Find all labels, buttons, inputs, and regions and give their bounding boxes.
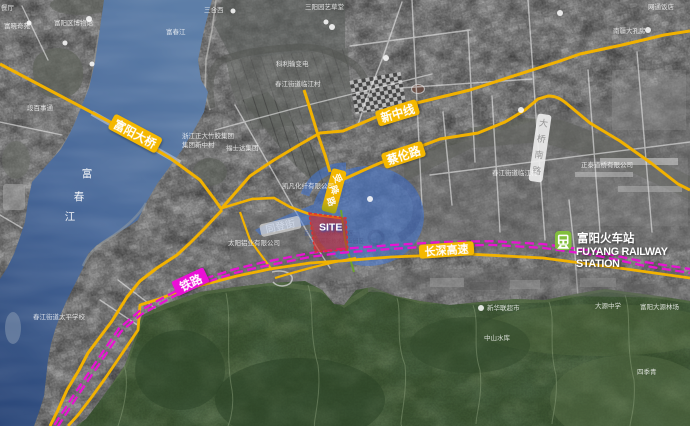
- svg-text:富晓奇苑: 富晓奇苑: [4, 21, 31, 30]
- svg-text:中山水库: 中山水库: [484, 333, 511, 342]
- svg-text:江: 江: [65, 211, 76, 223]
- svg-text:大: 大: [538, 117, 548, 129]
- svg-text:三阳园艺草堂: 三阳园艺草堂: [305, 2, 345, 11]
- svg-text:福士达集团: 福士达集团: [226, 143, 259, 152]
- svg-text:春江街道太平学校: 春江街道太平学校: [33, 312, 86, 321]
- svg-text:集团新中村: 集团新中村: [182, 140, 215, 149]
- svg-text:三合西: 三合西: [204, 5, 224, 14]
- svg-text:富阳火车站: 富阳火车站: [577, 231, 635, 245]
- svg-text:段百事通: 段百事通: [27, 103, 54, 112]
- svg-text:新华联超市: 新华联超市: [487, 303, 520, 312]
- svg-text:南: 南: [534, 148, 544, 160]
- svg-text:春: 春: [74, 191, 85, 203]
- svg-text:桥: 桥: [536, 133, 546, 145]
- svg-text:浙江正大竹胶集团: 浙江正大竹胶集团: [182, 131, 234, 140]
- svg-text:网通饭店: 网通饭店: [648, 2, 675, 11]
- svg-text:春江街道临江村: 春江街道临江村: [492, 168, 538, 177]
- svg-text:南疆大孔房: 南疆大孔房: [613, 26, 646, 35]
- svg-text:SITE: SITE: [319, 222, 342, 234]
- svg-text:富春江: 富春江: [166, 27, 186, 36]
- svg-text:大源中学: 大源中学: [595, 301, 622, 310]
- svg-text:春江街道临江村: 春江街道临江村: [275, 79, 321, 88]
- svg-text:太阳铝业有限公司: 太阳铝业有限公司: [228, 238, 280, 247]
- svg-text:富: 富: [82, 167, 93, 180]
- svg-text:四季青: 四季青: [637, 367, 657, 376]
- svg-text:凯凡化纤有限公司: 凯凡化纤有限公司: [282, 181, 334, 190]
- svg-text:富阳大源林场: 富阳大源林场: [640, 302, 680, 311]
- svg-text:STATION: STATION: [576, 258, 620, 270]
- svg-text:科利输变电: 科利输变电: [276, 59, 309, 68]
- svg-text:餐厅: 餐厅: [1, 3, 15, 12]
- svg-text:正泰道桥有限公司: 正泰道桥有限公司: [581, 160, 633, 169]
- svg-text:FUYANG RAILWAY: FUYANG RAILWAY: [576, 246, 669, 258]
